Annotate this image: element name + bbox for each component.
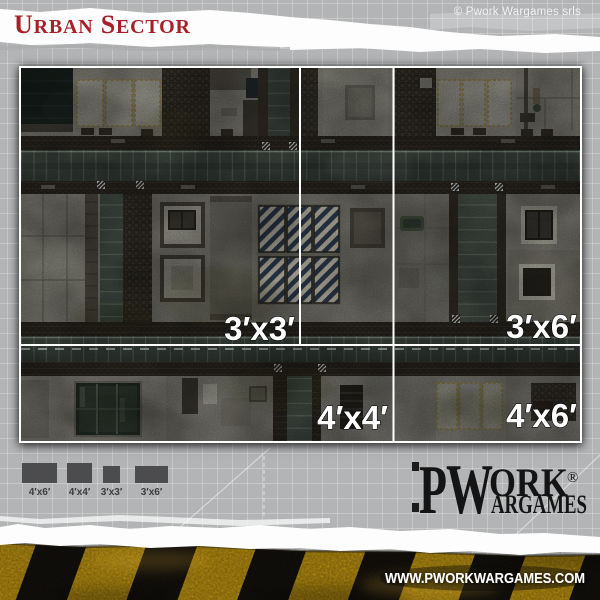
svg-text:WWW.PWORKWARGAMES.COM: WWW.PWORKWARGAMES.COM (385, 571, 585, 587)
svg-text:3′x3′: 3′x3′ (224, 310, 295, 347)
svg-text:3′x6′: 3′x6′ (506, 308, 577, 345)
svg-text:4′x4′: 4′x4′ (317, 399, 388, 436)
svg-text:ARGAMES: ARGAMES (491, 490, 587, 519)
svg-text:4′x6′: 4′x6′ (506, 397, 577, 434)
svg-text:W: W (446, 451, 493, 520)
svg-text:P: P (419, 452, 447, 520)
svg-text:®: ® (567, 470, 578, 486)
